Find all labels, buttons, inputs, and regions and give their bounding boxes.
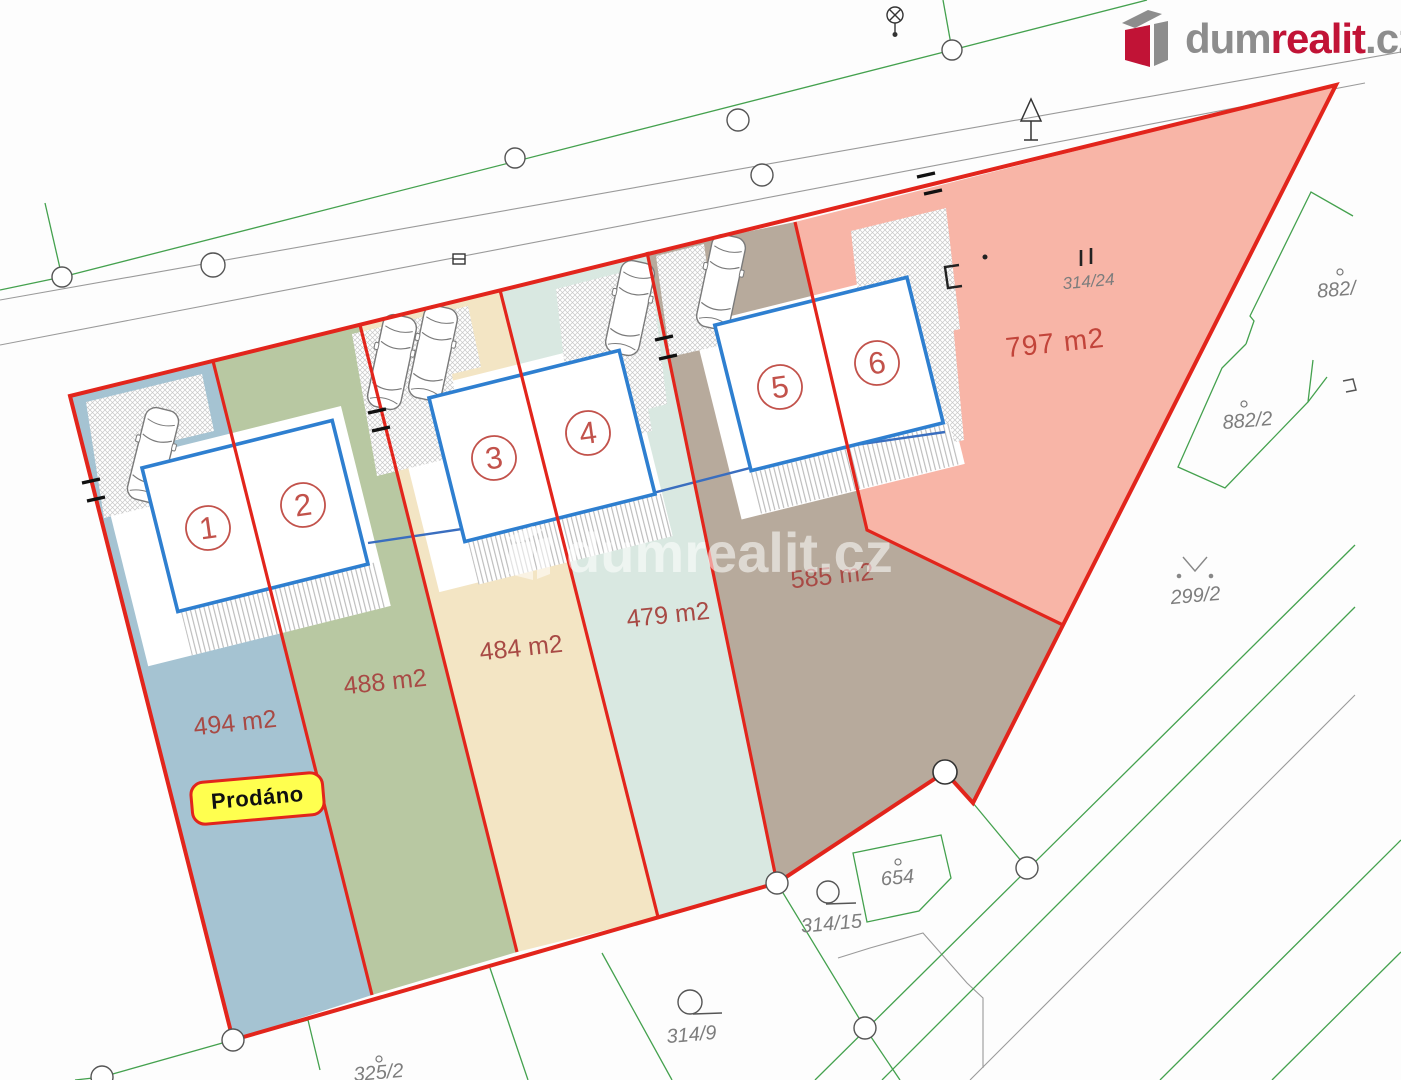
traffic-sign-icon: [1021, 99, 1041, 140]
parcel-label-299-2: 299/2: [1169, 583, 1222, 609]
parcel-label-882: 882/: [1316, 277, 1359, 303]
parcel-label-314-15: 314/15: [800, 910, 864, 937]
well-icon: [678, 990, 722, 1014]
logo-dum: dum: [1185, 15, 1271, 62]
parcel-label-325-2: 325/2: [353, 1060, 405, 1080]
point-dot: [983, 255, 988, 260]
parcel-label-882-2: 882/2: [1222, 408, 1274, 434]
cadastral-site-plan: 1 2 3 4 5 6 494: [0, 0, 1401, 1080]
site-plan-svg: 1 2 3 4 5 6 494: [0, 0, 1401, 1080]
parcel-label-654: 654: [880, 866, 915, 891]
lamp-post-icon: [887, 7, 903, 37]
shaft-icon: [453, 254, 465, 264]
logo-cz: .cz: [1365, 15, 1401, 62]
logo-house-icon: [1122, 8, 1178, 70]
logo-text: dumrealit.cz: [1185, 8, 1401, 70]
logo-realit: realit: [1271, 15, 1365, 62]
well-icon: [817, 881, 856, 904]
orchard-icon: [1177, 557, 1214, 578]
brand-logo: dumrealit.cz: [1122, 8, 1401, 70]
bracket-icon: [1343, 379, 1356, 392]
parcel-label-314-9: 314/9: [666, 1022, 718, 1048]
